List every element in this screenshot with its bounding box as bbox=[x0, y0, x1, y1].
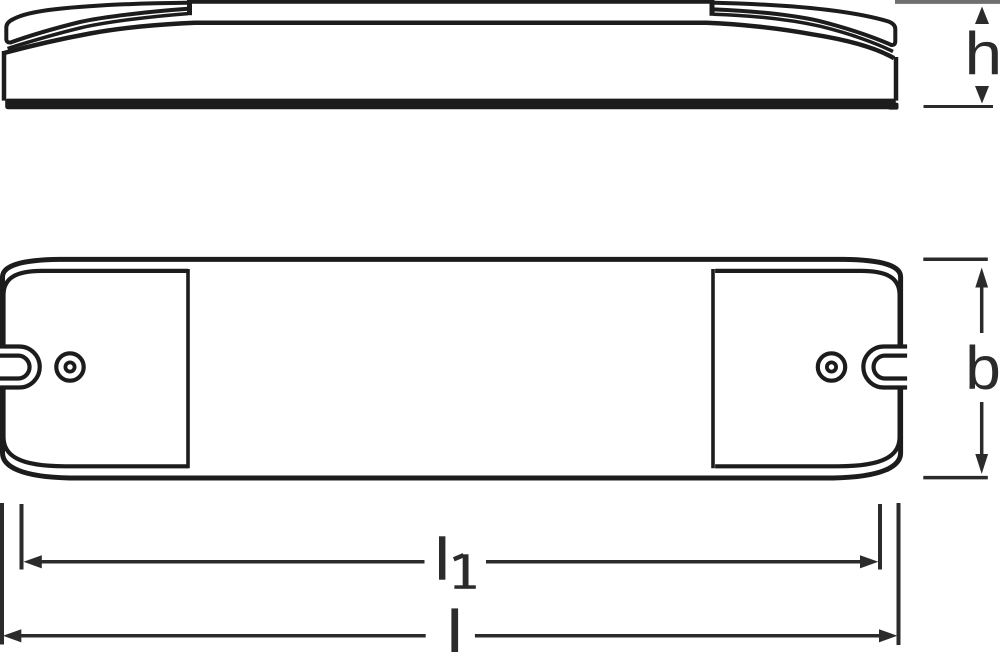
svg-text:h: h bbox=[965, 20, 1000, 87]
svg-text:b: b bbox=[965, 335, 1000, 403]
